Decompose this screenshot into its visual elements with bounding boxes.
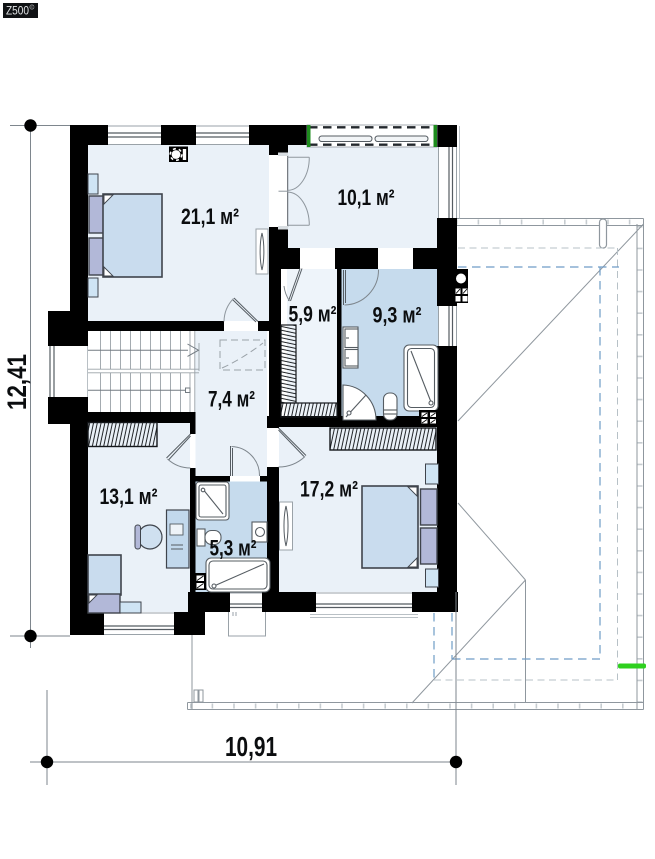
svg-text:21,1 м²: 21,1 м² [181,204,239,229]
svg-text:12,41: 12,41 [2,354,32,410]
svg-text:13,1 м²: 13,1 м² [100,484,158,509]
svg-text:Z500: Z500 [6,4,29,18]
svg-text:10,1 м²: 10,1 м² [338,185,395,210]
svg-text:10,91: 10,91 [225,731,277,762]
svg-text:5,3 м²: 5,3 м² [210,536,257,561]
svg-text:©: © [30,4,35,12]
svg-text:5,9 м²: 5,9 м² [289,302,337,327]
svg-text:7,4 м²: 7,4 м² [208,387,255,412]
svg-text:17,2 м²: 17,2 м² [300,477,358,502]
svg-text:9,3 м²: 9,3 м² [373,303,422,328]
